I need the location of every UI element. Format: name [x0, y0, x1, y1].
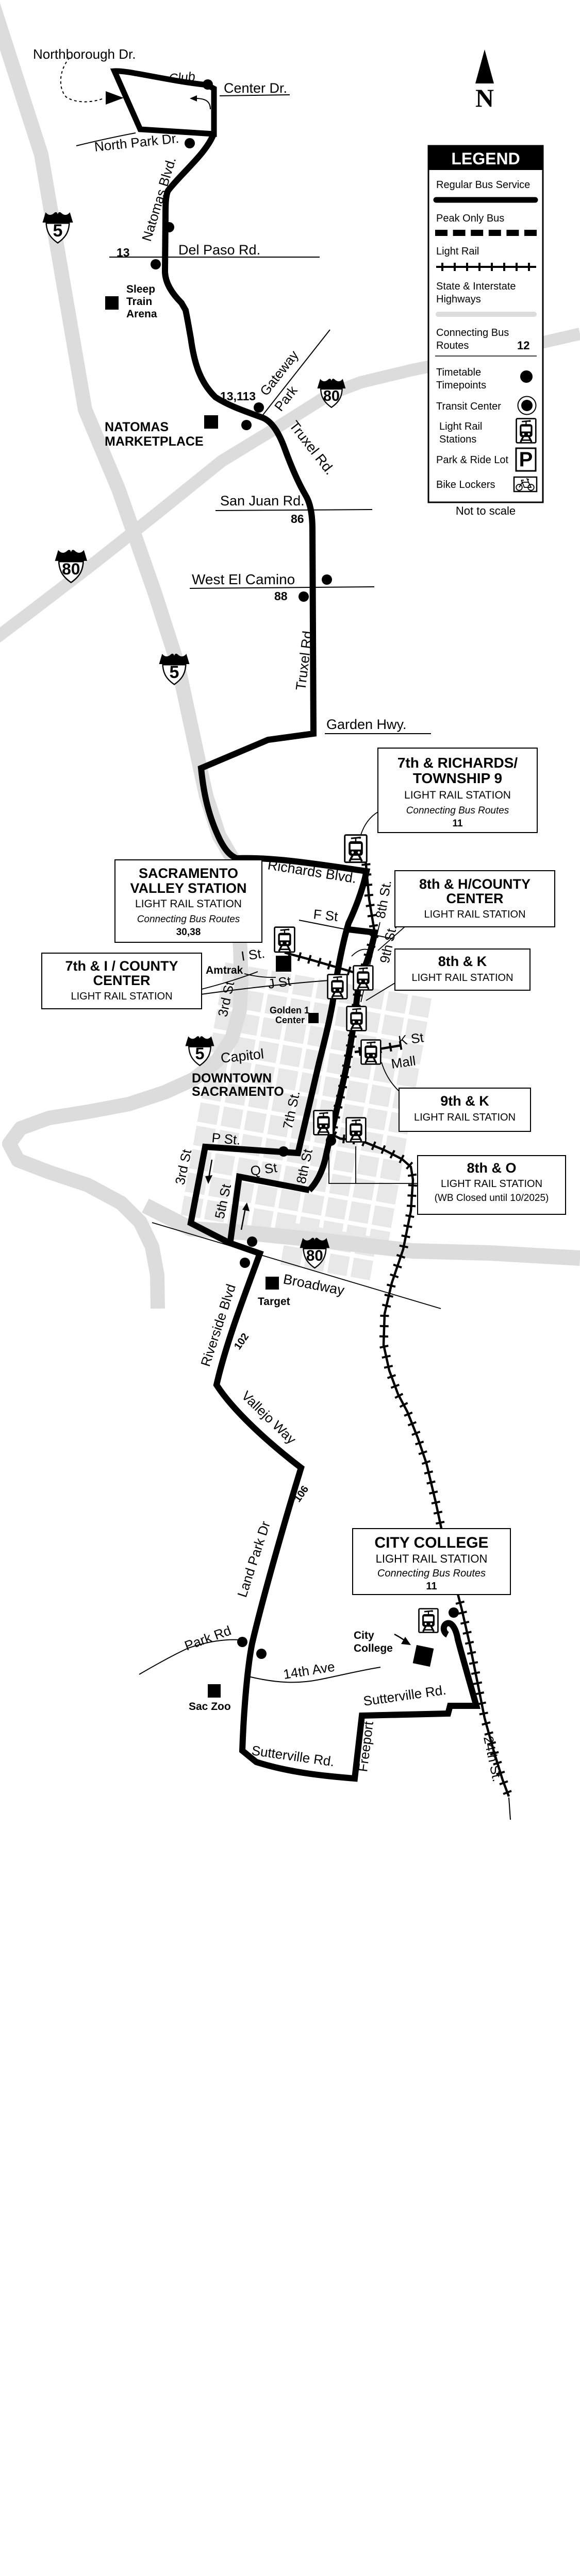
svg-text:Park & Ride Lot: Park & Ride Lot — [436, 454, 509, 466]
svg-text:LIGHT RAIL STATION: LIGHT RAIL STATION — [404, 789, 511, 801]
svg-text:City: City — [354, 1630, 374, 1641]
svg-text:8th & O: 8th & O — [467, 1160, 516, 1176]
svg-text:9th & K: 9th & K — [440, 1093, 489, 1109]
svg-text:P St.: P St. — [211, 1130, 241, 1148]
svg-text:Not to scale: Not to scale — [456, 504, 516, 517]
svg-text:West El Camino: West El Camino — [192, 571, 295, 587]
svg-text:8th & H/COUNTY: 8th & H/COUNTY — [419, 876, 531, 892]
svg-text:80: 80 — [306, 1247, 323, 1264]
svg-text:5: 5 — [53, 221, 63, 241]
svg-text:5: 5 — [195, 1044, 205, 1063]
svg-text:LEGEND: LEGEND — [451, 149, 520, 168]
svg-text:Sac Zoo: Sac Zoo — [189, 1701, 231, 1713]
svg-text:7th & RICHARDS/: 7th & RICHARDS/ — [397, 755, 518, 771]
svg-text:TOWNSHIP 9: TOWNSHIP 9 — [413, 770, 502, 786]
svg-text:Connecting Bus Routes: Connecting Bus Routes — [406, 805, 509, 816]
svg-text:LIGHT RAIL STATION: LIGHT RAIL STATION — [135, 898, 242, 910]
svg-text:Sleep: Sleep — [126, 283, 155, 295]
svg-text:CENTER: CENTER — [93, 973, 150, 988]
svg-text:Connecting Bus Routes: Connecting Bus Routes — [137, 914, 240, 925]
svg-text:LIGHT RAIL STATION: LIGHT RAIL STATION — [441, 1178, 542, 1190]
svg-text:80: 80 — [323, 388, 340, 404]
svg-text:Golden 1: Golden 1 — [270, 1005, 309, 1015]
svg-text:LIGHT RAIL STATION: LIGHT RAIL STATION — [376, 1552, 488, 1565]
svg-text:Timetable: Timetable — [436, 367, 481, 378]
svg-text:12: 12 — [517, 339, 529, 352]
svg-text:P: P — [519, 448, 533, 471]
svg-text:Train: Train — [126, 296, 152, 308]
svg-text:F St: F St — [312, 906, 339, 924]
svg-text:86: 86 — [291, 512, 304, 526]
svg-text:5: 5 — [170, 663, 179, 682]
svg-text:Stations: Stations — [439, 434, 476, 445]
svg-text:Timepoints: Timepoints — [436, 380, 486, 391]
svg-text:Highways: Highways — [436, 294, 481, 305]
svg-text:LIGHT RAIL STATION: LIGHT RAIL STATION — [414, 1112, 516, 1123]
svg-text:MARKETPLACE: MARKETPLACE — [105, 434, 204, 449]
svg-text:Light Rail: Light Rail — [439, 421, 482, 432]
svg-text:Target: Target — [258, 1296, 290, 1308]
svg-text:Garden Hwy.: Garden Hwy. — [326, 717, 407, 732]
svg-text:Peak Only Bus: Peak Only Bus — [436, 213, 504, 224]
svg-text:Routes: Routes — [436, 340, 469, 351]
svg-text:J St: J St — [267, 973, 292, 992]
svg-text:College: College — [354, 1642, 393, 1654]
svg-text:State & Interstate: State & Interstate — [436, 281, 516, 292]
svg-text:Center Dr.: Center Dr. — [224, 80, 287, 96]
svg-text:LIGHT RAIL STATION: LIGHT RAIL STATION — [71, 991, 172, 1002]
svg-text:Regular Bus Service: Regular Bus Service — [436, 179, 530, 191]
svg-text:DOWNTOWN: DOWNTOWN — [192, 1071, 272, 1086]
svg-text:Center: Center — [275, 1015, 305, 1025]
svg-text:Connecting Bus: Connecting Bus — [436, 327, 509, 338]
svg-text:Del Paso Rd.: Del Paso Rd. — [178, 242, 260, 258]
svg-text:Northborough Dr.: Northborough Dr. — [33, 46, 136, 62]
svg-text:88: 88 — [274, 589, 288, 603]
svg-text:13,113: 13,113 — [220, 389, 256, 403]
svg-text:LIGHT RAIL STATION: LIGHT RAIL STATION — [424, 909, 525, 920]
svg-text:Transit Center: Transit Center — [436, 401, 501, 412]
svg-text:7th & I / COUNTY: 7th & I / COUNTY — [65, 958, 178, 974]
svg-text:80: 80 — [62, 560, 80, 578]
svg-text:SACRAMENTO: SACRAMENTO — [192, 1084, 284, 1099]
svg-text:Arena: Arena — [126, 308, 157, 320]
svg-text:LIGHT RAIL STATION: LIGHT RAIL STATION — [411, 972, 513, 984]
svg-text:CENTER: CENTER — [446, 891, 503, 906]
svg-text:Club: Club — [168, 70, 196, 86]
svg-text:NATOMAS: NATOMAS — [105, 420, 169, 434]
svg-text:Light Rail: Light Rail — [436, 246, 479, 257]
svg-text:Connecting Bus Routes: Connecting Bus Routes — [377, 1568, 486, 1579]
svg-text:CITY COLLEGE: CITY COLLEGE — [374, 1534, 488, 1551]
svg-text:(WB Closed until 10/2025): (WB Closed until 10/2025) — [435, 1193, 549, 1204]
svg-text:San Juan Rd.: San Juan Rd. — [220, 493, 305, 509]
svg-text:SACRAMENTO: SACRAMENTO — [139, 866, 238, 881]
svg-text:N: N — [475, 83, 494, 112]
svg-text:11: 11 — [426, 1581, 437, 1592]
svg-text:30,38: 30,38 — [176, 927, 201, 938]
svg-text:I St.: I St. — [240, 945, 266, 964]
svg-text:Bike Lockers: Bike Lockers — [436, 479, 495, 490]
svg-text:13: 13 — [117, 246, 130, 259]
svg-text:VALLEY STATION: VALLEY STATION — [130, 880, 246, 896]
svg-text:11: 11 — [452, 818, 463, 829]
svg-text:8th & K: 8th & K — [438, 954, 487, 969]
svg-text:Amtrak: Amtrak — [206, 964, 243, 976]
